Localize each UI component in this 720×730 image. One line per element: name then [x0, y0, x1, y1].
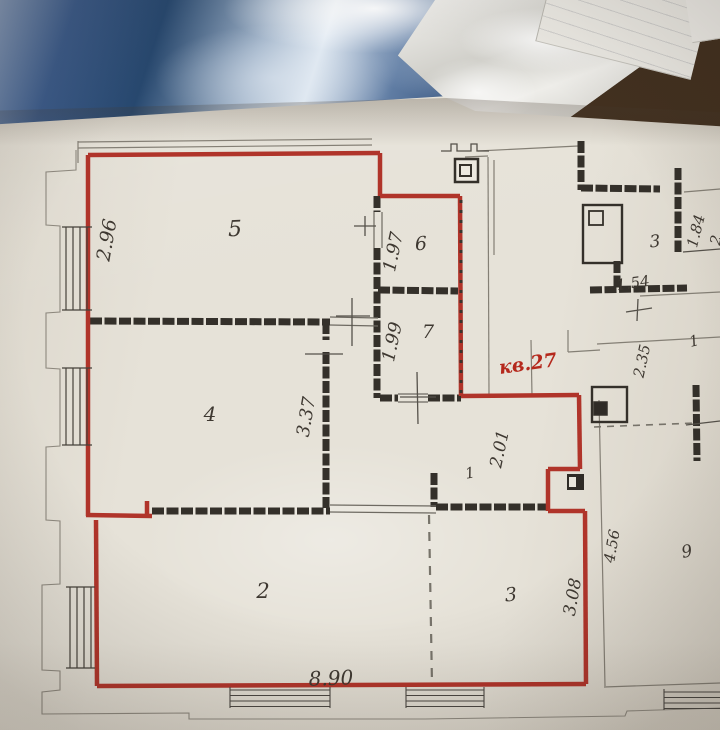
- notch-shaft-inner: [569, 477, 576, 487]
- neighbor-room-9-label: 9: [680, 541, 695, 563]
- dashed-partitions: [429, 423, 697, 684]
- neighbor-dim-456: 4.56: [600, 528, 624, 565]
- room-5-label: 5: [228, 217, 243, 242]
- red-wall-hatch: [461, 200, 584, 490]
- neighbor-dim-235: 2.35: [630, 343, 655, 380]
- room-1-label: 1: [464, 463, 477, 482]
- room-7-label: 7: [422, 321, 435, 343]
- window-sills: [230, 687, 720, 710]
- room-2-label: 2: [255, 579, 269, 603]
- neighbor-room-1-label: 1: [687, 331, 701, 351]
- neighbor-dim-partial: 2: [706, 233, 720, 248]
- building-outline: [78, 139, 720, 687]
- room-3-dimension: 3.08: [560, 576, 586, 617]
- room-3-label: 3: [504, 584, 518, 607]
- apartment-boundary: [86, 153, 586, 686]
- room-1-dimension: 2.01: [486, 428, 514, 470]
- photo-of-floor-plan: 5 2.96 6 1.97 7 1.99 4 3.37 1 2.01 2 8.9…: [0, 0, 720, 730]
- neighbor-room-3-label: 3: [649, 231, 662, 252]
- room-6-dimension: 1.97: [379, 230, 408, 274]
- room-7-dimension: 1.99: [378, 320, 407, 364]
- room-5-dimension: 2.96: [92, 217, 121, 263]
- balcony-outline: [42, 150, 720, 719]
- room-6-label: 6: [414, 233, 428, 256]
- room-labels: 5 2.96 6 1.97 7 1.99 4 3.37 1 2.01 2 8.9…: [92, 217, 586, 691]
- room-4-label: 4: [203, 402, 217, 426]
- floor-plan-drawing: 5 2.96 6 1.97 7 1.99 4 3.37 1 2.01 2 8.9…: [0, 0, 720, 730]
- apartment-number-stamp: кв.27: [498, 349, 559, 379]
- room-4-dimension: 3.37: [293, 395, 321, 439]
- neighbor-dim-184: 1.84: [683, 213, 709, 250]
- room-2-dimension: 8.90: [308, 665, 354, 691]
